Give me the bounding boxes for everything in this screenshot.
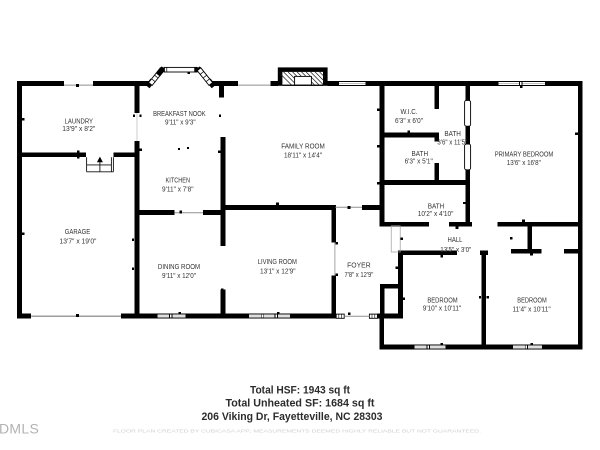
svg-text:13'7" x 19'0": 13'7" x 19'0"	[60, 239, 97, 246]
svg-text:Total Unheated SF: 1684 sq ft: Total Unheated SF: 1684 sq ft	[226, 398, 375, 410]
svg-text:PRIMARY BEDROOM: PRIMARY BEDROOM	[495, 150, 554, 159]
svg-text:HALL: HALL	[448, 235, 463, 244]
svg-text:LIVING ROOM: LIVING ROOM	[258, 257, 297, 266]
svg-text:206 Viking Dr, Fayetteville, N: 206 Viking Dr, Fayetteville, NC 28303	[202, 411, 383, 423]
svg-text:13'6" x 16'8": 13'6" x 16'8"	[507, 160, 542, 167]
svg-text:13'9" x 8'2": 13'9" x 8'2"	[62, 126, 95, 133]
svg-text:GARAGE: GARAGE	[65, 227, 91, 236]
svg-text:9'11" x 7'8": 9'11" x 7'8"	[162, 186, 194, 193]
svg-text:BEDROOM: BEDROOM	[427, 296, 457, 305]
svg-text:BATH: BATH	[412, 149, 429, 158]
svg-text:BATH: BATH	[428, 202, 445, 211]
svg-text:BATH: BATH	[444, 129, 461, 138]
svg-text:BEDROOM: BEDROOM	[517, 296, 546, 305]
svg-text:BREAKFAST NOOK: BREAKFAST NOOK	[153, 109, 206, 118]
svg-text:6'3" x 6'0": 6'3" x 6'0"	[395, 118, 423, 125]
svg-text:DMLS: DMLS	[0, 421, 39, 437]
svg-text:W.I.C.: W.I.C.	[401, 107, 418, 116]
svg-text:13'1" x 12'9": 13'1" x 12'9"	[260, 269, 296, 276]
svg-text:13'5" x 3'0": 13'5" x 3'0"	[440, 247, 471, 254]
svg-text:FLOOR PLAN CREATED BY CUBICASA: FLOOR PLAN CREATED BY CUBICASA APP; MEAS…	[113, 429, 481, 434]
svg-text:DINING ROOM: DINING ROOM	[158, 262, 200, 271]
svg-text:LAUNDRY: LAUNDRY	[65, 116, 94, 125]
svg-text:FAMILY ROOM: FAMILY ROOM	[281, 141, 325, 150]
svg-text:9'11" x 12'0": 9'11" x 12'0"	[162, 273, 196, 280]
svg-text:FOYER: FOYER	[347, 261, 371, 270]
svg-text:11'4" x 10'11": 11'4" x 10'11"	[513, 307, 552, 314]
svg-text:9'10" x 10'11": 9'10" x 10'11"	[423, 306, 462, 313]
svg-text:6'3" x 5'1": 6'3" x 5'1"	[405, 159, 434, 166]
svg-text:18'11" x 14'4": 18'11" x 14'4"	[284, 152, 322, 159]
svg-text:9'11" x 9'3": 9'11" x 9'3"	[165, 120, 196, 127]
svg-text:KITCHEN: KITCHEN	[166, 176, 191, 185]
svg-text:3'6" x 11'5": 3'6" x 11'5"	[437, 140, 467, 147]
svg-text:7'8" x 12'9": 7'8" x 12'9"	[344, 272, 373, 279]
svg-text:10'2" x 4'10": 10'2" x 4'10"	[418, 211, 454, 218]
svg-text:Total HSF: 1943 sq ft: Total HSF: 1943 sq ft	[250, 384, 350, 396]
